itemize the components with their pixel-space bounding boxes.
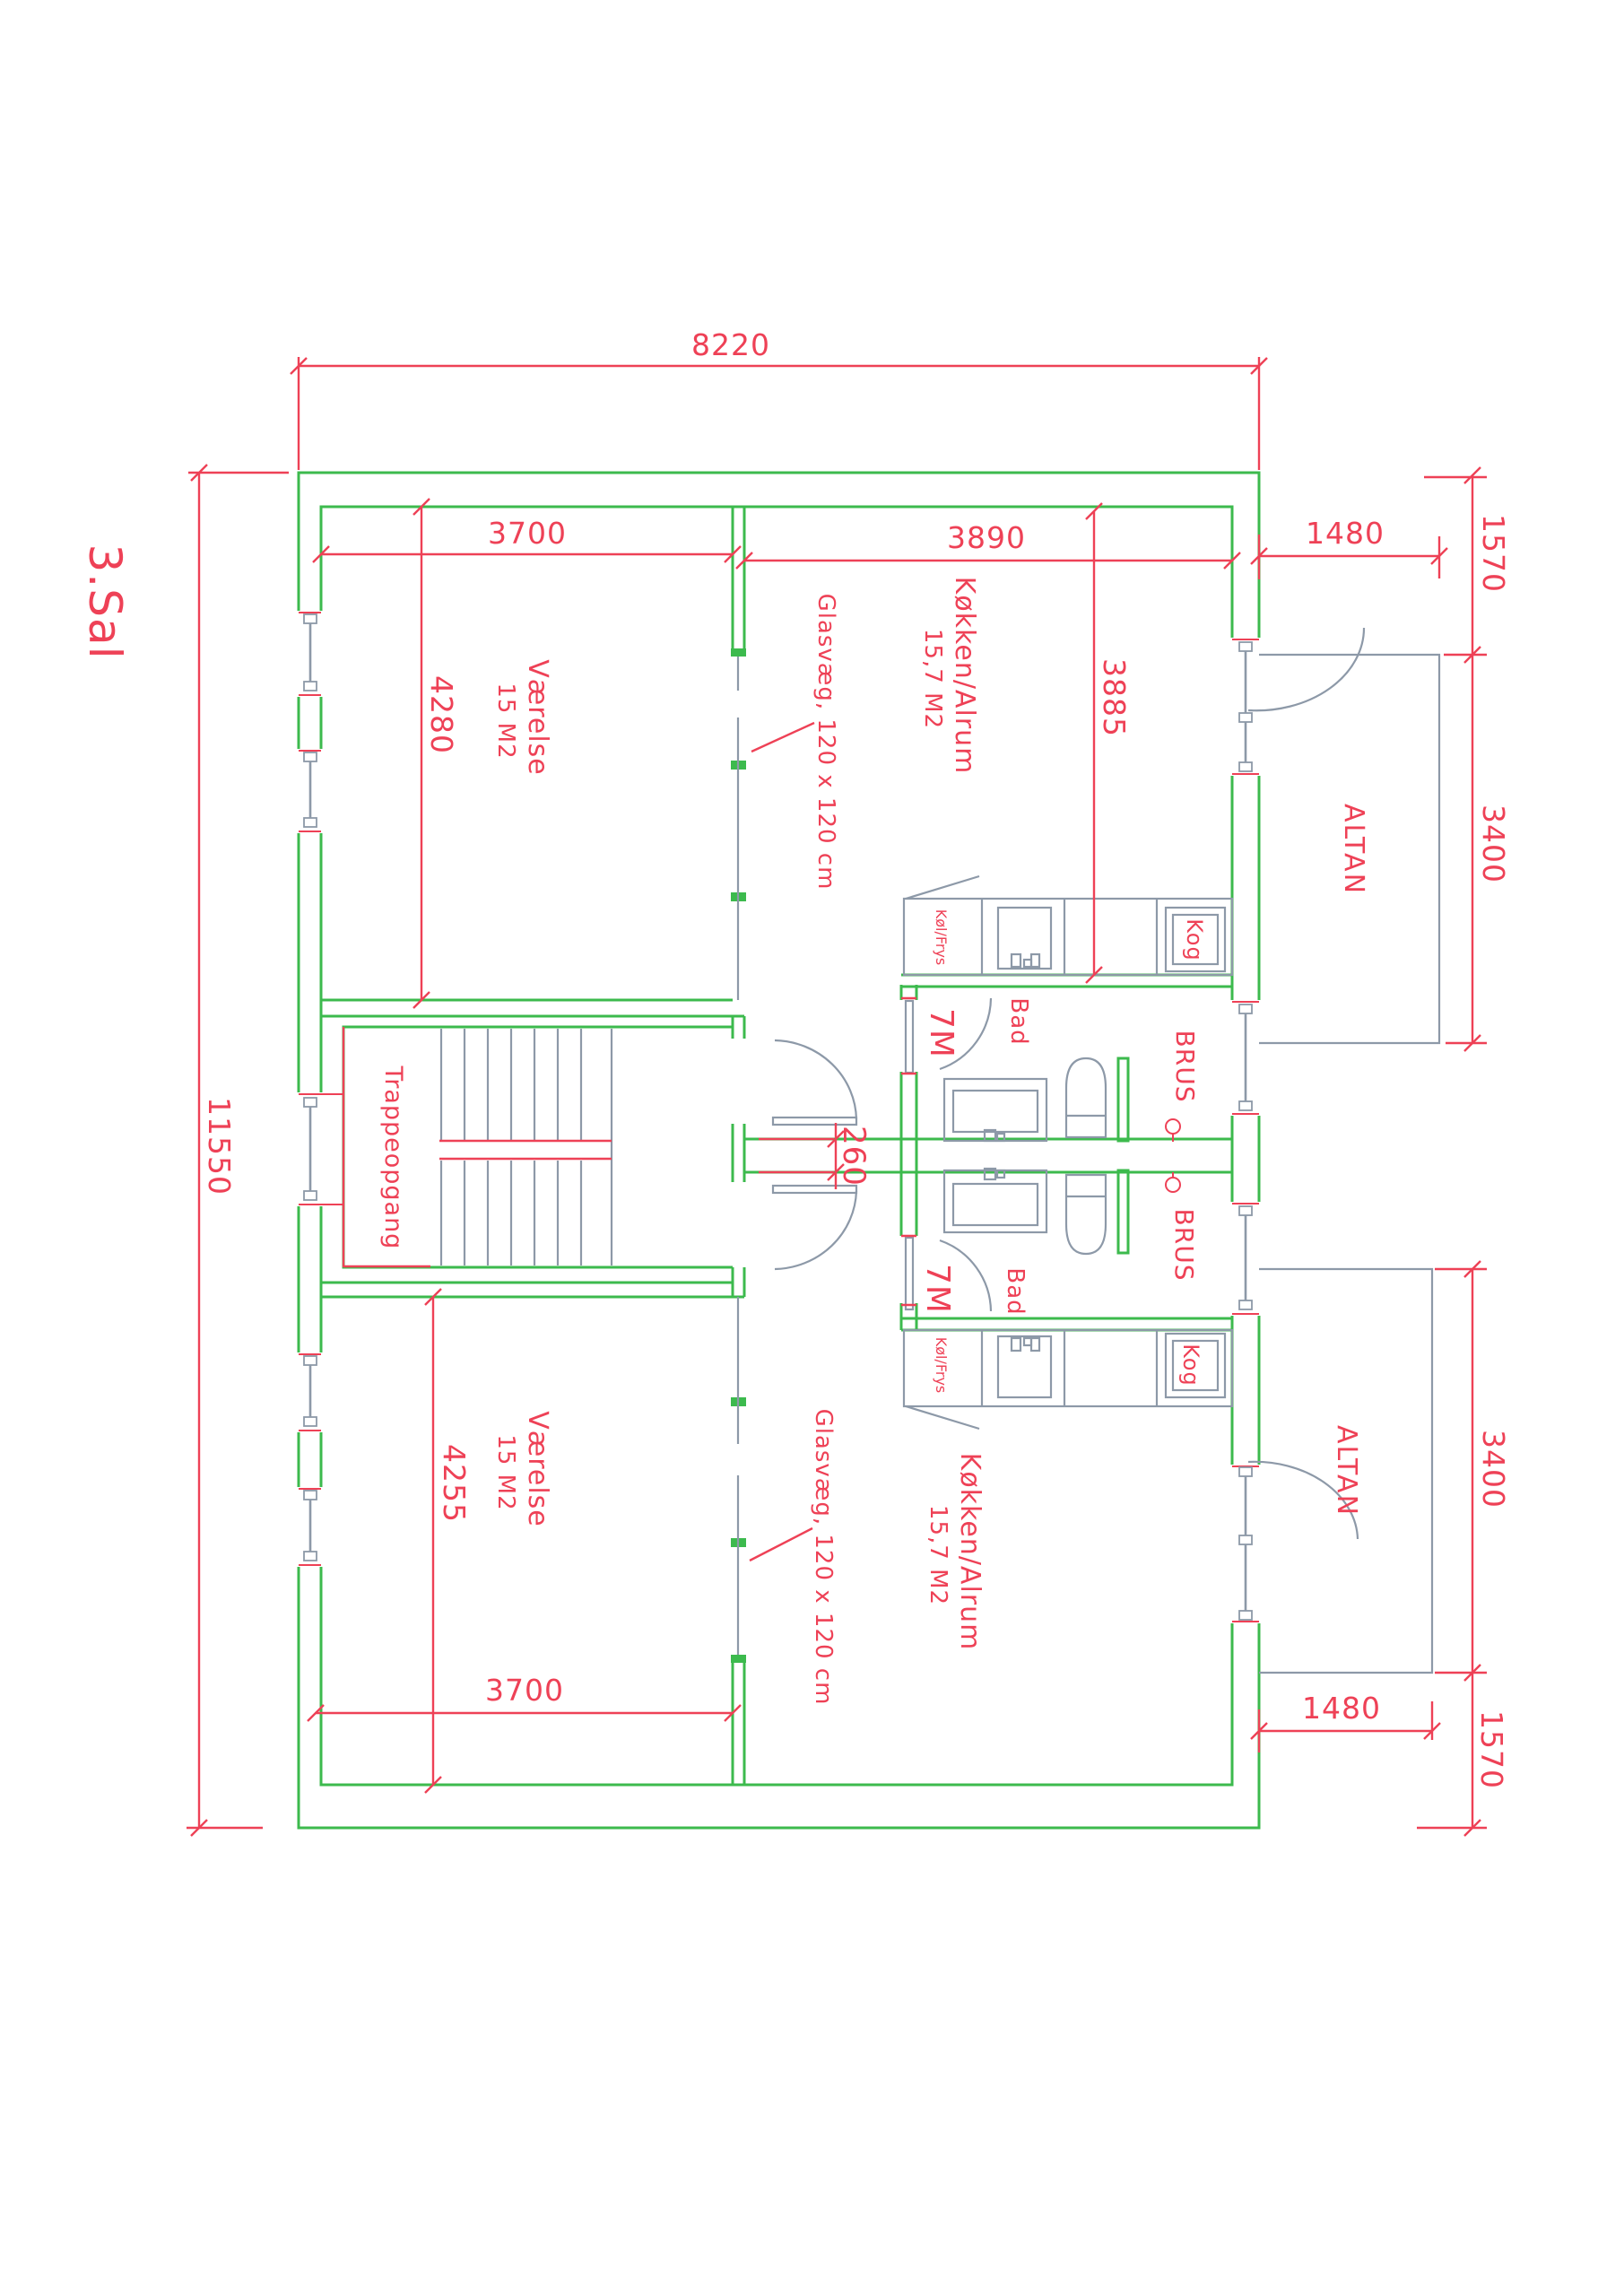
toilet-top bbox=[1066, 1058, 1106, 1137]
stairwell-label: Trappeopgang bbox=[379, 1065, 407, 1250]
bath-top-label: Bad bbox=[1005, 997, 1032, 1045]
dim-room-bottom-width: 3700 bbox=[485, 1673, 564, 1708]
entry-door-top bbox=[773, 1040, 856, 1125]
dim-kitchen-top-depth: 3885 bbox=[1097, 658, 1132, 737]
balcony-door-top bbox=[1248, 628, 1364, 710]
glass-wall-bottom-label: Glasvæg, 120 x 120 cm bbox=[810, 1409, 837, 1706]
glass-wall-top-label: Glasvæg, 120 x 120 cm bbox=[812, 594, 839, 891]
dim-balcony-bottom-depth: 3400 bbox=[1476, 1430, 1511, 1509]
balcony-top-label: ALTAN bbox=[1338, 804, 1369, 895]
doors bbox=[773, 628, 1364, 1539]
room-top-label: Værelse bbox=[522, 659, 553, 776]
balcony-bottom-label: ALTAN bbox=[1331, 1425, 1362, 1517]
dim-overall-width: 8220 bbox=[691, 327, 770, 362]
bathroom-fixtures-bottom bbox=[944, 1169, 1106, 1254]
shower-heads bbox=[1166, 1119, 1180, 1192]
floor-title: 3.Sal bbox=[79, 544, 131, 660]
dim-room-top-width: 3700 bbox=[488, 516, 567, 551]
room-top-area: 15 M2 bbox=[492, 683, 519, 759]
toilet-bottom bbox=[1066, 1175, 1106, 1254]
dim-kitchen-top-width: 3890 bbox=[947, 520, 1026, 555]
bath-bottom-label: Bad bbox=[1002, 1267, 1029, 1315]
dim-balcony-bottom-width: 1480 bbox=[1302, 1691, 1381, 1726]
cooktop-top-label: Kog bbox=[1182, 918, 1207, 961]
cooktop-bottom-label: Kog bbox=[1178, 1344, 1203, 1386]
dim-party-wall: 260 bbox=[836, 1126, 872, 1187]
entry-door-bottom bbox=[773, 1186, 856, 1269]
shower-bottom-label: BRUS bbox=[1169, 1209, 1199, 1282]
room-bottom-label: Værelse bbox=[522, 1411, 553, 1527]
kitchen-bottom-label: Køkken/Alrum bbox=[954, 1453, 986, 1651]
bathroom-fixtures-top bbox=[944, 1058, 1106, 1141]
dim-room-top-depth: 4280 bbox=[424, 675, 459, 754]
shower-top-label: BRUS bbox=[1170, 1031, 1200, 1103]
dim-balcony-bottom-setback: 1570 bbox=[1474, 1710, 1509, 1789]
kitchen-top-label: Køkken/Alrum bbox=[949, 577, 980, 775]
kitchen-top-area: 15,7 M2 bbox=[919, 629, 946, 729]
floor-plan-page: 3.Sal 8220 11550 3700 3890 4280 3885 157… bbox=[0, 0, 1624, 2296]
room-bottom-area: 15 M2 bbox=[492, 1434, 519, 1510]
dim-balcony-top-depth: 3400 bbox=[1476, 804, 1511, 883]
bath-top-area: 7M bbox=[923, 1008, 960, 1058]
dim-overall-depth: 11550 bbox=[202, 1097, 237, 1196]
dim-balcony-top-width: 1480 bbox=[1306, 516, 1385, 551]
bath-bottom-area: 7M bbox=[919, 1264, 956, 1314]
fridge-bottom-label: Køl/Frys bbox=[933, 1337, 950, 1394]
labels: 3.Sal 8220 11550 3700 3890 4280 3885 157… bbox=[79, 327, 1511, 1789]
dim-balcony-top-setback: 1570 bbox=[1476, 514, 1511, 593]
floor-plan-drawing: 3.Sal 8220 11550 3700 3890 4280 3885 157… bbox=[0, 0, 1624, 2296]
kitchen-bottom-area: 15,7 M2 bbox=[925, 1505, 951, 1605]
stair-treads bbox=[441, 1029, 612, 1265]
dim-room-bottom-depth: 4255 bbox=[437, 1444, 472, 1523]
fridge-top-label: Køl/Frys bbox=[933, 909, 950, 966]
